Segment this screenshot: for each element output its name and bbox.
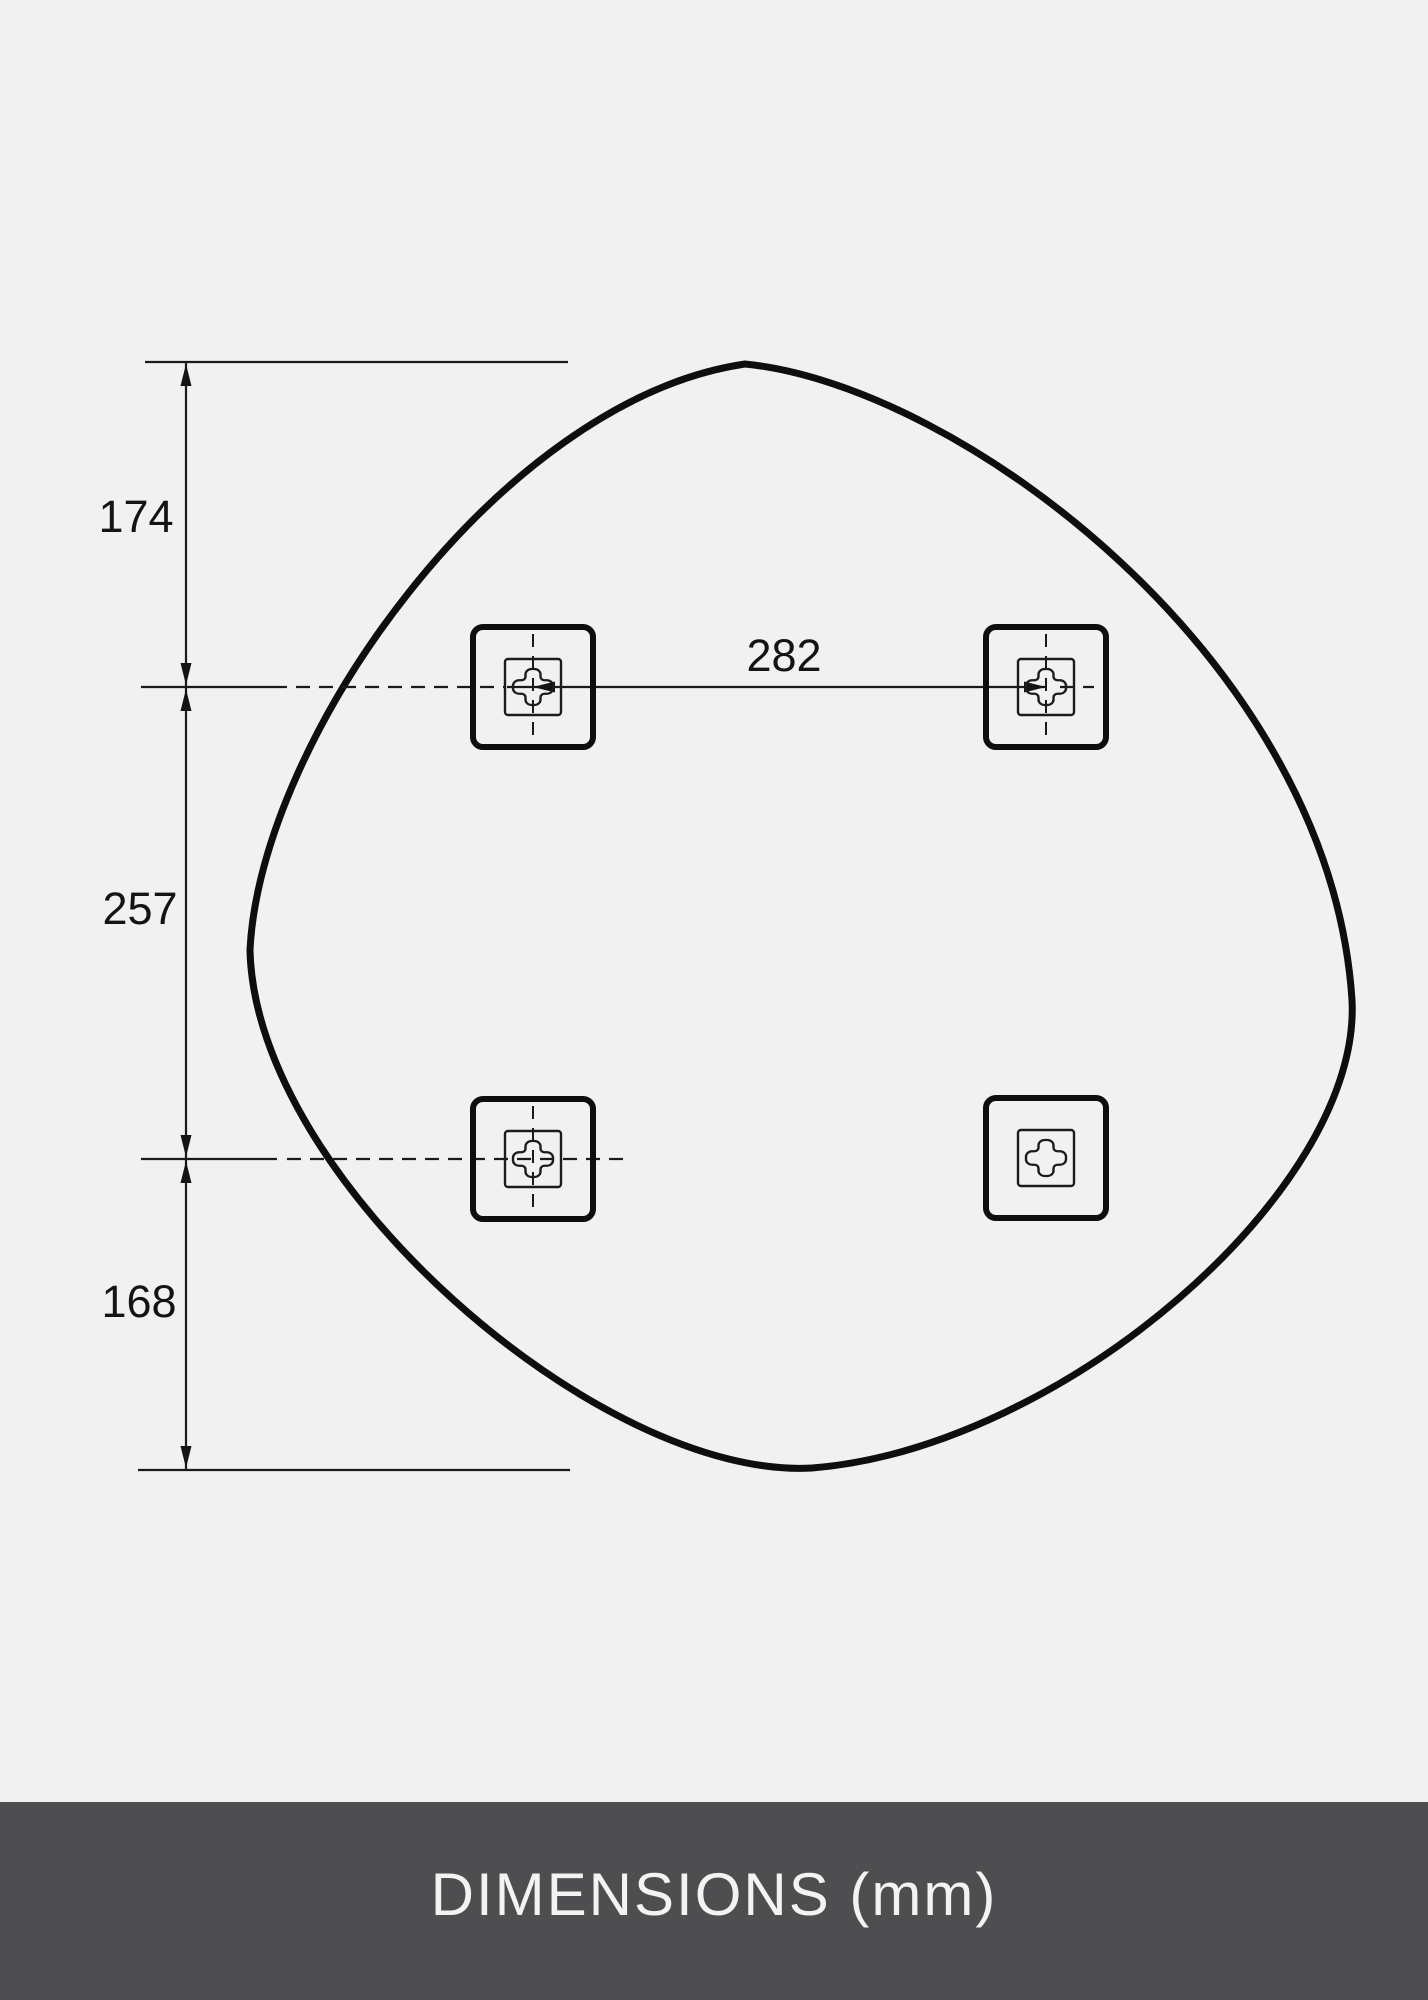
dimension-label-282: 282 <box>746 630 821 681</box>
mounting-bracket-bottom-right <box>986 1098 1106 1218</box>
arrow-up-icon <box>181 689 192 711</box>
arrow-down-icon <box>181 1135 192 1157</box>
arrow-down-icon <box>181 1446 192 1468</box>
dimension-sheet: 174 257 168 282 DIMENSIONS (mm) <box>0 0 1428 2000</box>
dimension-label-174: 174 <box>98 491 173 542</box>
mirror-dimension-diagram: 174 257 168 282 <box>0 0 1428 1802</box>
arrow-up-icon <box>181 364 192 386</box>
bracket-outer-plate <box>986 1098 1106 1218</box>
footer-title: DIMENSIONS (mm) <box>431 1860 998 1929</box>
arrow-down-icon <box>181 663 192 685</box>
mounting-brackets <box>473 627 1106 1219</box>
arrow-up-icon <box>181 1161 192 1183</box>
extension-lines <box>138 362 632 1470</box>
cross-slot-icon <box>1026 1140 1066 1176</box>
mirror-outline <box>250 364 1352 1468</box>
footer-bar: DIMENSIONS (mm) <box>0 1802 1428 2000</box>
vertical-dimension-line <box>181 362 192 1470</box>
dimension-label-257: 257 <box>102 883 177 934</box>
dimension-label-168: 168 <box>101 1276 176 1327</box>
